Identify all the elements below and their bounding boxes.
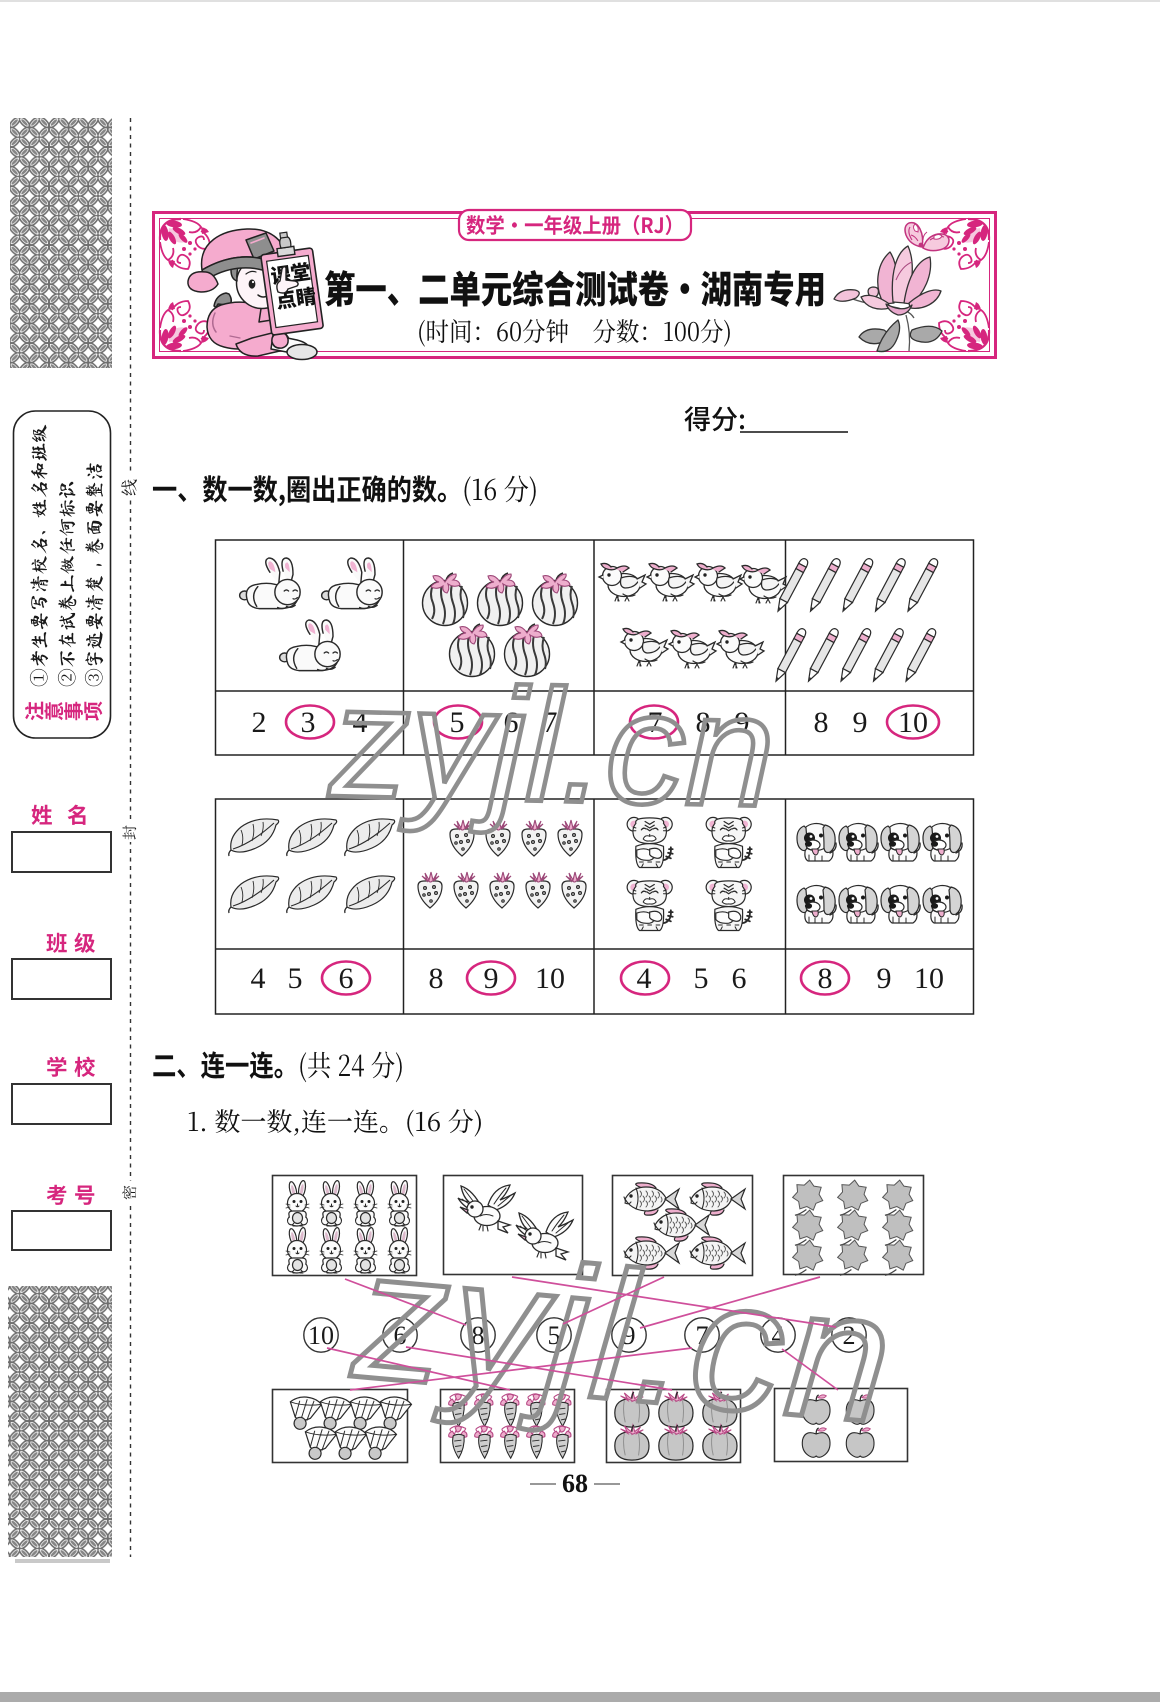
svg-text:8: 8 [429, 962, 444, 995]
svg-text:3: 3 [301, 706, 316, 739]
svg-text:6: 6 [732, 962, 747, 995]
svg-text:2: 2 [252, 706, 267, 739]
svg-text:10: 10 [535, 962, 565, 995]
svg-text:4: 4 [251, 962, 266, 995]
svg-text:10: 10 [308, 1321, 334, 1350]
svg-text:8: 8 [818, 962, 833, 995]
svg-text:9: 9 [484, 962, 499, 995]
svg-text:10: 10 [898, 706, 928, 739]
svg-text:6: 6 [339, 962, 354, 995]
svg-text:9: 9 [877, 962, 892, 995]
svg-text:8: 8 [814, 706, 829, 739]
svg-text:10: 10 [914, 962, 944, 995]
svg-text:zyjl.cn: zyjl.cn [327, 651, 776, 840]
svg-text:9: 9 [853, 706, 868, 739]
svg-text:5: 5 [288, 962, 303, 995]
svg-text:4: 4 [637, 962, 652, 995]
svg-text:68: 68 [562, 1469, 588, 1498]
svg-text:5: 5 [694, 962, 709, 995]
